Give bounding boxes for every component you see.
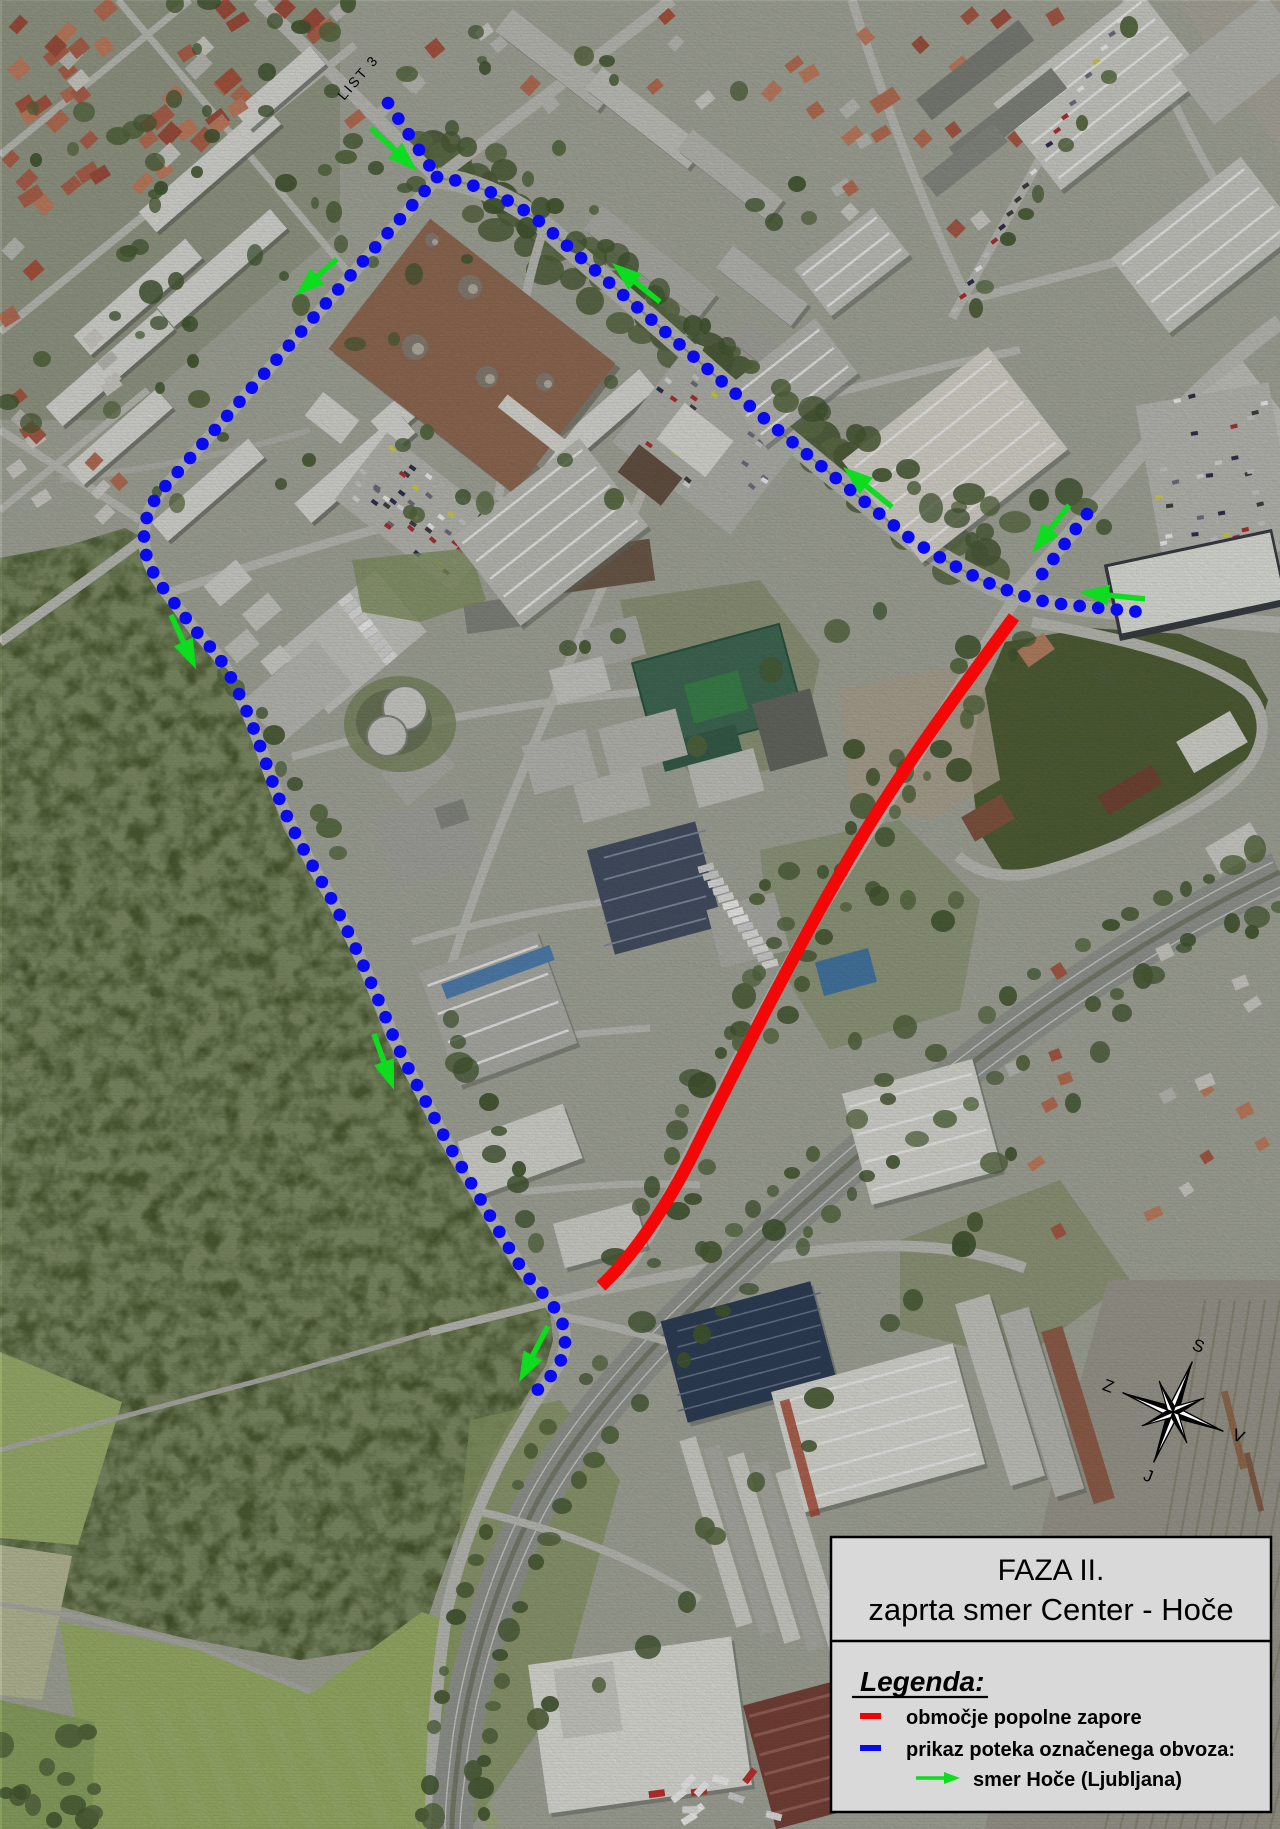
svg-text:Legenda:: Legenda: bbox=[860, 1666, 984, 1697]
svg-text:območje popolne zapore: območje popolne zapore bbox=[906, 1707, 1142, 1729]
svg-text:zaprta smer Center - Hoče: zaprta smer Center - Hoče bbox=[868, 1592, 1233, 1627]
svg-text:FAZA II.: FAZA II. bbox=[998, 1554, 1105, 1587]
svg-text:prikaz poteka označenega obvoz: prikaz poteka označenega obvoza: bbox=[906, 1739, 1235, 1761]
svg-text:smer Hoče (Ljubljana): smer Hoče (Ljubljana) bbox=[973, 1769, 1182, 1791]
